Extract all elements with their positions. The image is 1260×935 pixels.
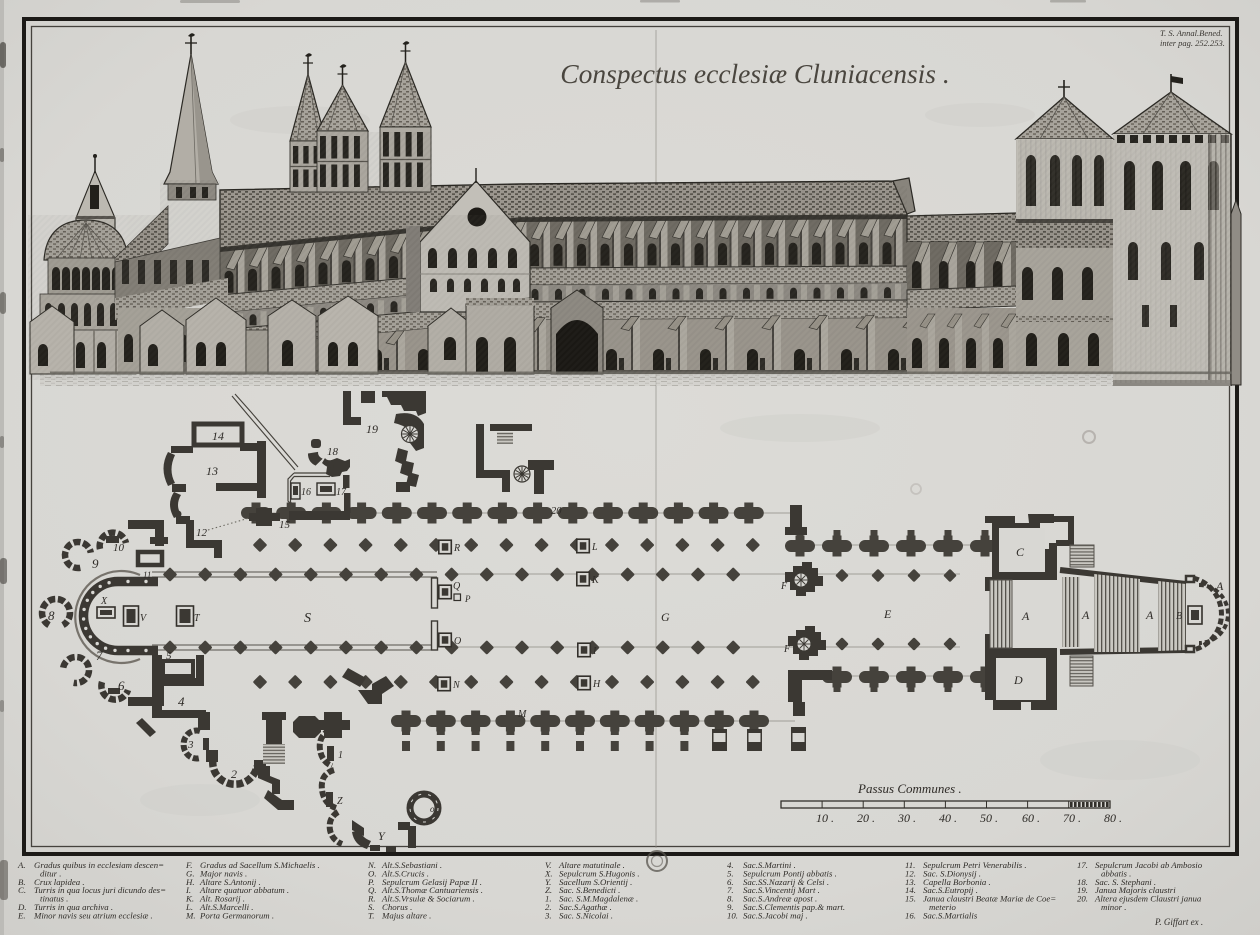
svg-text:12: 12 bbox=[196, 527, 208, 539]
svg-text:B: B bbox=[1176, 611, 1182, 622]
svg-text:15: 15 bbox=[279, 519, 291, 531]
svg-text:S: S bbox=[304, 611, 311, 626]
svg-text:11: 11 bbox=[143, 570, 151, 580]
svg-text:Minor navis seu atrium ecclesi: Minor navis seu atrium ecclesiæ . bbox=[33, 910, 153, 920]
svg-text:40 .: 40 . bbox=[939, 811, 957, 825]
svg-text:50 .: 50 . bbox=[980, 811, 998, 825]
svg-text:Sac. S.Nicolai .: Sac. S.Nicolai . bbox=[559, 910, 613, 920]
svg-text:16.: 16. bbox=[905, 910, 916, 920]
svg-text:Z: Z bbox=[337, 796, 343, 807]
svg-text:D: D bbox=[1013, 673, 1023, 687]
svg-text:F: F bbox=[780, 581, 788, 592]
svg-text:G: G bbox=[661, 610, 670, 624]
svg-text:Conspectus ecclesiæ Cluniacens: Conspectus ecclesiæ Cluniacensis . bbox=[560, 58, 950, 89]
svg-text:Q: Q bbox=[453, 581, 461, 592]
svg-text:1: 1 bbox=[338, 750, 343, 761]
svg-text:R: R bbox=[453, 543, 460, 554]
svg-text:X: X bbox=[100, 596, 108, 607]
svg-text:70 .: 70 . bbox=[1063, 811, 1081, 825]
svg-text:M.: M. bbox=[185, 910, 196, 920]
svg-text:16: 16 bbox=[301, 487, 311, 498]
svg-text:4: 4 bbox=[178, 694, 185, 709]
svg-text:C.: C. bbox=[18, 885, 26, 895]
svg-text:5: 5 bbox=[166, 650, 172, 662]
svg-text:15.: 15. bbox=[905, 894, 916, 904]
svg-text:14: 14 bbox=[212, 429, 224, 443]
svg-text:minor .: minor . bbox=[1101, 902, 1126, 912]
svg-text:T.: T. bbox=[368, 910, 374, 920]
svg-text:60 .: 60 . bbox=[1022, 811, 1040, 825]
svg-text:P. Giffart ex .: P. Giffart ex . bbox=[1154, 917, 1203, 927]
svg-text:T. S. Annal.Bened.: T. S. Annal.Bened. bbox=[1160, 28, 1222, 38]
svg-text:O: O bbox=[454, 636, 461, 647]
svg-text:H: H bbox=[592, 679, 601, 690]
svg-text:o: o bbox=[430, 804, 435, 814]
svg-text:A: A bbox=[1145, 608, 1154, 622]
svg-text:A: A bbox=[1081, 608, 1090, 622]
svg-text:M: M bbox=[517, 709, 527, 720]
svg-text:30 .: 30 . bbox=[897, 811, 916, 825]
svg-text:17: 17 bbox=[336, 487, 347, 498]
svg-text:C: C bbox=[1016, 545, 1025, 559]
svg-text:3.: 3. bbox=[544, 910, 552, 920]
svg-text:P: P bbox=[464, 594, 471, 604]
svg-text:20 .: 20 . bbox=[857, 811, 875, 825]
svg-text:K: K bbox=[591, 575, 600, 586]
svg-text:10 .: 10 . bbox=[816, 811, 834, 825]
svg-text:9: 9 bbox=[92, 556, 99, 571]
svg-text:F: F bbox=[783, 644, 791, 655]
svg-text:Majus altare .: Majus altare . bbox=[381, 910, 431, 920]
svg-text:Sac.S.Jacobi maj .: Sac.S.Jacobi maj . bbox=[743, 910, 808, 920]
svg-text:6: 6 bbox=[118, 678, 125, 693]
svg-text:80 .: 80 . bbox=[1104, 811, 1122, 825]
svg-text:Sac.S.Martialis: Sac.S.Martialis bbox=[923, 910, 978, 920]
svg-text:L: L bbox=[591, 542, 598, 553]
svg-text:10: 10 bbox=[113, 542, 125, 554]
svg-text:20.: 20. bbox=[1077, 894, 1088, 904]
svg-text:13: 13 bbox=[206, 464, 218, 478]
svg-text:8: 8 bbox=[48, 608, 55, 623]
svg-text:I: I bbox=[592, 646, 597, 657]
svg-text:10.: 10. bbox=[727, 910, 738, 920]
svg-text:Porta Germanorum .: Porta Germanorum . bbox=[199, 910, 274, 920]
svg-text:A: A bbox=[1021, 609, 1030, 623]
svg-text:3: 3 bbox=[187, 739, 194, 751]
svg-text:18: 18 bbox=[327, 446, 339, 458]
svg-text:E.: E. bbox=[17, 910, 26, 920]
svg-text:A.: A. bbox=[17, 860, 26, 870]
svg-text:2: 2 bbox=[231, 767, 237, 781]
svg-text:N: N bbox=[452, 680, 461, 691]
svg-text:20: 20 bbox=[551, 506, 562, 517]
svg-text:E: E bbox=[883, 607, 892, 621]
svg-text:7: 7 bbox=[96, 648, 103, 663]
svg-text:A: A bbox=[1215, 579, 1224, 593]
svg-text:17.: 17. bbox=[1077, 860, 1088, 870]
svg-text:inter pag. 252.253.: inter pag. 252.253. bbox=[1160, 38, 1225, 48]
svg-text:Passus Communes .: Passus Communes . bbox=[857, 781, 962, 796]
svg-text:19: 19 bbox=[366, 422, 378, 436]
